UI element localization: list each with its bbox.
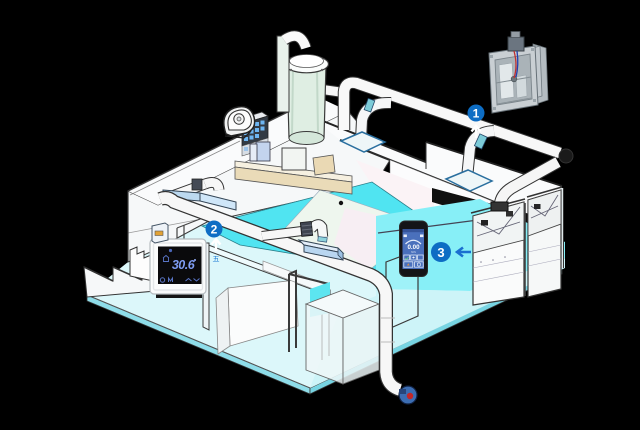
svg-text:2: 2: [211, 223, 218, 237]
svg-text:30.6: 30.6: [172, 258, 196, 272]
svg-text:MIN: MIN: [411, 250, 416, 254]
svg-text:五: 五: [213, 255, 220, 263]
svg-text:1: 1: [473, 107, 480, 121]
svg-text:3: 3: [437, 245, 444, 260]
